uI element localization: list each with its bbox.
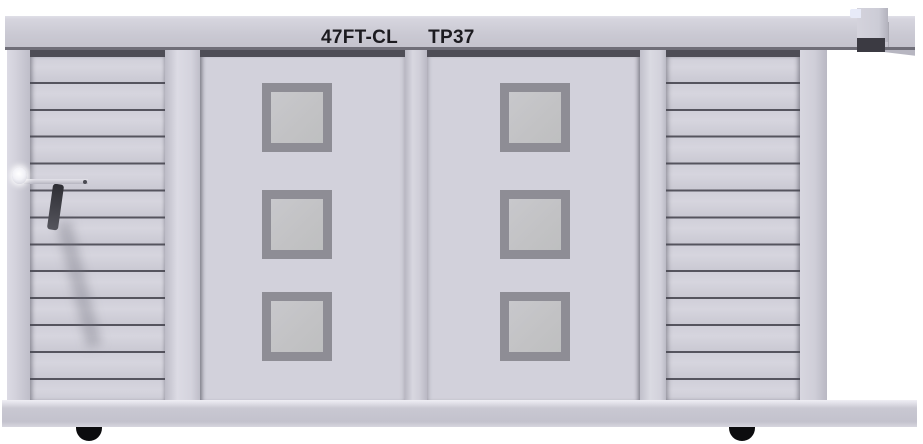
right-corner-post (800, 47, 827, 400)
door-window (500, 190, 570, 259)
window-glass (509, 301, 561, 352)
container-unit-render: 47FT-CL TP37 (0, 0, 923, 444)
base-rail (2, 400, 917, 427)
door-window (262, 292, 332, 361)
door-window (500, 292, 570, 361)
window-glass (271, 301, 323, 352)
latch-knob[interactable] (12, 167, 27, 184)
window-glass (509, 199, 561, 250)
door-window (500, 83, 570, 152)
right-wheel (729, 425, 755, 441)
roller-bracket (857, 8, 888, 42)
sliding-door-left[interactable] (200, 57, 405, 400)
code-label: TP37 (428, 27, 475, 49)
window-glass (271, 199, 323, 250)
window-glass (509, 92, 561, 143)
unit-labels: 47FT-CL TP37 (321, 27, 475, 49)
left-corner-post (7, 47, 30, 400)
door-divider (405, 47, 427, 400)
door-window (262, 190, 332, 259)
model-label: 47FT-CL (321, 27, 398, 49)
sliding-door-right[interactable] (427, 57, 640, 400)
left-door-stile (165, 47, 200, 400)
door-window (262, 83, 332, 152)
latch-pin (83, 180, 87, 184)
left-wheel (76, 425, 102, 441)
right-door-stile (640, 47, 666, 400)
bracket-tab (850, 9, 861, 18)
window-glass (271, 92, 323, 143)
bracket-shadow (857, 38, 885, 52)
rail-step-line (888, 22, 889, 47)
right-louver-panel (666, 57, 800, 400)
latch-bar[interactable] (24, 179, 88, 184)
